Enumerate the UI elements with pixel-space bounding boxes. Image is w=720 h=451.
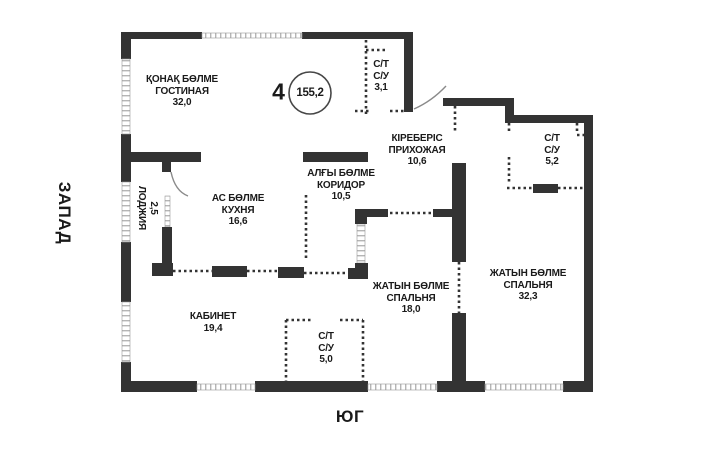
room-name-ru: ГОСТИНАЯ bbox=[146, 86, 218, 98]
room-label-bath-bottom: С/Т С/У 5,0 bbox=[318, 331, 334, 366]
bath-line2: С/У bbox=[544, 145, 560, 157]
room-name-kk: ЖАТЫН БӨЛМЕ bbox=[373, 281, 449, 293]
compass-south-label: ЮГ bbox=[336, 411, 364, 423]
room-name-ru: КУХНЯ bbox=[212, 205, 264, 217]
room-label-bath-right: С/Т С/У 5,2 bbox=[544, 133, 560, 168]
room-area: 18,0 bbox=[373, 304, 449, 316]
bath-line2: С/У bbox=[318, 343, 334, 355]
room-name-ru: КОРИДОР bbox=[307, 180, 375, 192]
room-label-loggia-name: ЛОДЖИЯ bbox=[136, 186, 146, 230]
room-label-loggia-area: 2,5 bbox=[148, 201, 158, 214]
bath-line1: С/Т bbox=[373, 59, 389, 71]
apartment-total-area: 155,2 bbox=[296, 87, 323, 99]
room-area: 5,0 bbox=[318, 354, 334, 366]
entry-door-leaf bbox=[414, 86, 446, 109]
room-label-kitchen: АС БӨЛМЕ КУХНЯ 16,6 bbox=[212, 193, 264, 228]
room-label-office: КАБИНЕТ 19,4 bbox=[190, 311, 236, 334]
bath-line1: С/Т bbox=[544, 133, 560, 145]
room-name-kk: КІРЕБЕРІС bbox=[389, 133, 446, 145]
room-label-bedroom-right: ЖАТЫН БӨЛМЕ СПАЛЬНЯ 32,3 bbox=[490, 268, 566, 303]
room-name-ru: ПРИХОЖАЯ bbox=[389, 145, 446, 157]
room-label-bath-top: С/Т С/У 3,1 bbox=[373, 59, 389, 94]
loggia-door-leaf bbox=[171, 172, 188, 196]
room-name-ru: СПАЛЬНЯ bbox=[490, 280, 566, 292]
apartment-rooms-count: 4 bbox=[272, 79, 284, 106]
room-area: 32,0 bbox=[146, 97, 218, 109]
room-area: 5,2 bbox=[544, 156, 560, 168]
room-label-bedroom-mid: ЖАТЫН БӨЛМЕ СПАЛЬНЯ 18,0 bbox=[373, 281, 449, 316]
room-area: 10,6 bbox=[389, 156, 446, 168]
room-label-corridor: АЛҒЫ БӨЛМЕ КОРИДОР 10,5 bbox=[307, 168, 375, 203]
room-area: 3,1 bbox=[373, 82, 389, 94]
room-name-kk: ЖАТЫН БӨЛМЕ bbox=[490, 268, 566, 280]
bath-line1: С/Т bbox=[318, 331, 334, 343]
floor-plan: ҚОНАҚ БӨЛМЕ ГОСТИНАЯ 32,0 4 155,2 С/Т С/… bbox=[0, 0, 720, 451]
floor-plan-drawing bbox=[0, 0, 720, 451]
room-name-kk: АЛҒЫ БӨЛМЕ bbox=[307, 168, 375, 180]
room-area: 19,4 bbox=[190, 323, 236, 335]
bath-line2: С/У bbox=[373, 71, 389, 83]
room-name-kk: ҚОНАҚ БӨЛМЕ bbox=[146, 74, 218, 86]
room-area: 16,6 bbox=[212, 216, 264, 228]
room-label-living: ҚОНАҚ БӨЛМЕ ГОСТИНАЯ 32,0 bbox=[146, 74, 218, 109]
room-name-ru: КАБИНЕТ bbox=[190, 311, 236, 323]
room-area: 32,3 bbox=[490, 291, 566, 303]
compass-west-label: ЗАПАД bbox=[59, 182, 69, 244]
room-area: 10,5 bbox=[307, 191, 375, 203]
room-name-ru: СПАЛЬНЯ bbox=[373, 293, 449, 305]
room-label-hallway: КІРЕБЕРІС ПРИХОЖАЯ 10,6 bbox=[389, 133, 446, 168]
room-name-kk: АС БӨЛМЕ bbox=[212, 193, 264, 205]
